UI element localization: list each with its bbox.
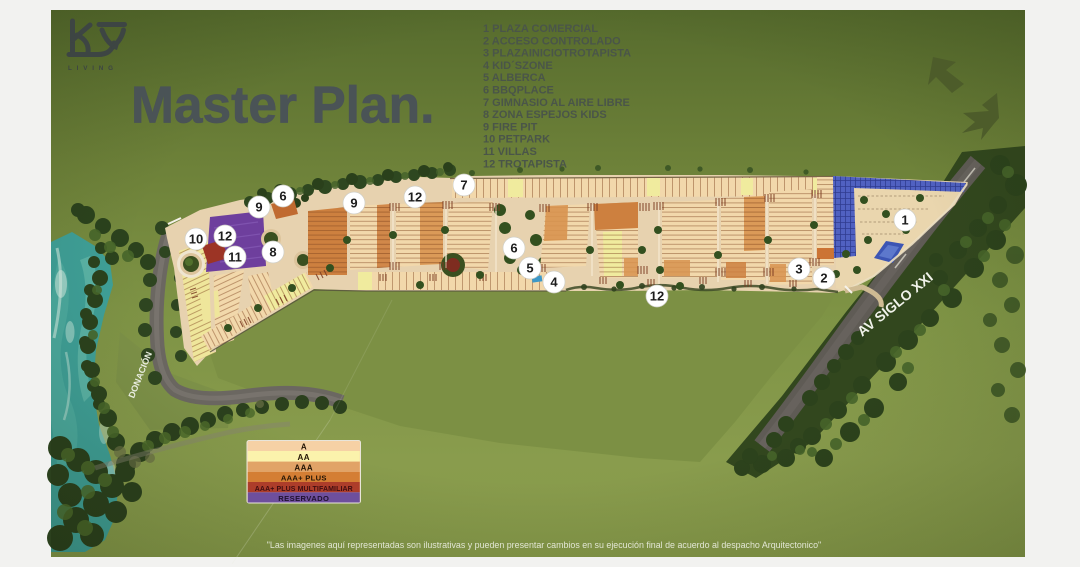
svg-text:7: 7 — [460, 178, 467, 193]
svg-text:3: 3 — [795, 262, 802, 277]
svg-text:2 ACCESO CONTROLADO: 2 ACCESO CONTROLADO — [483, 35, 621, 47]
svg-text:12: 12 — [650, 289, 664, 304]
svg-text:10: 10 — [189, 232, 203, 247]
svg-text:9: 9 — [255, 200, 262, 215]
svg-text:Master Plan.: Master Plan. — [131, 76, 434, 134]
svg-text:6: 6 — [279, 189, 286, 204]
svg-text:1 PLAZA COMERCIAL: 1 PLAZA COMERCIAL — [483, 23, 598, 35]
svg-text:6: 6 — [510, 241, 517, 256]
svg-text:12: 12 — [218, 229, 232, 244]
svg-text:"Las imagenes aquí representad: "Las imagenes aquí representadas son ilu… — [267, 540, 821, 550]
svg-text:A: A — [301, 443, 307, 452]
svg-text:2: 2 — [820, 271, 827, 286]
svg-text:1: 1 — [901, 213, 908, 228]
svg-text:9: 9 — [350, 196, 357, 211]
svg-text:10 PETPARK: 10 PETPARK — [483, 134, 550, 146]
svg-text:4 KID´SZONE: 4 KID´SZONE — [483, 60, 553, 72]
svg-text:4: 4 — [550, 275, 558, 290]
svg-text:AAA+ PLUS: AAA+ PLUS — [281, 474, 327, 483]
svg-text:AA: AA — [298, 453, 311, 462]
svg-text:RESERVADO: RESERVADO — [278, 494, 329, 503]
svg-text:7 GIMNASIO AL AIRE LIBRE: 7 GIMNASIO AL AIRE LIBRE — [483, 97, 630, 109]
svg-text:5 ALBERCA: 5 ALBERCA — [483, 72, 546, 84]
svg-text:AAA+ PLUS MULTIFAMILIAR: AAA+ PLUS MULTIFAMILIAR — [255, 486, 353, 493]
svg-text:3 PLAZAINICIOTROTAPISTA: 3 PLAZAINICIOTROTAPISTA — [483, 48, 631, 60]
svg-text:12: 12 — [408, 190, 422, 205]
svg-text:12 TROTAPISTA: 12 TROTAPISTA — [483, 158, 567, 170]
svg-text:LIVING: LIVING — [68, 65, 118, 72]
svg-text:8: 8 — [269, 245, 276, 260]
svg-text:AAA: AAA — [294, 463, 313, 472]
svg-text:6 BBQPLACE: 6 BBQPLACE — [483, 85, 554, 97]
svg-text:11: 11 — [228, 250, 242, 265]
svg-text:8 ZONA ESPEJOS KIDS: 8 ZONA ESPEJOS KIDS — [483, 109, 607, 121]
svg-text:9 FIRE PIT: 9 FIRE PIT — [483, 121, 538, 133]
svg-text:5: 5 — [526, 261, 533, 276]
svg-text:11 VILLAS: 11 VILLAS — [483, 146, 537, 158]
